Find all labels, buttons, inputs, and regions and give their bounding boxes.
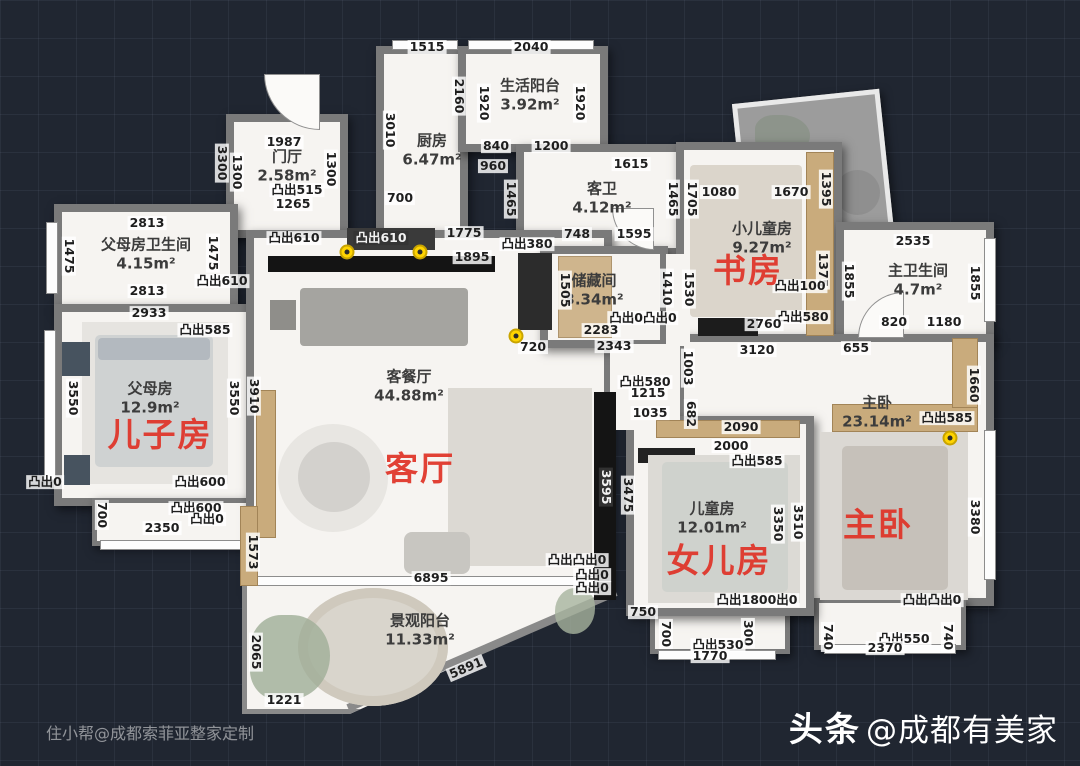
dimension-label: 1770 [691, 649, 730, 663]
dimension-label: 700 [385, 191, 415, 205]
dimension-label: 凸出0 [26, 475, 64, 489]
dimension-label: 655 [841, 341, 871, 355]
dimension-label: 1410 [660, 269, 674, 308]
dimension-label: 凸出凸出0 [901, 593, 964, 607]
room-name: 门厅 [257, 147, 316, 166]
yellow-marker [509, 329, 524, 344]
dimension-label: 2535 [894, 234, 933, 248]
dimension-label: 1215 [629, 386, 668, 400]
dimension-label: 1530 [682, 270, 696, 309]
room-name: 景观阳台 [385, 611, 455, 630]
dimension-label: 1300 [230, 153, 244, 192]
dimension-label: 1895 [453, 250, 492, 264]
dimension-label: 700 [95, 500, 109, 530]
dimension-label: 3475 [621, 476, 635, 515]
yellow-marker [340, 245, 355, 260]
red-annotation: 客厅 [385, 442, 455, 490]
dimension-label: 凸出0 [188, 512, 226, 526]
dimension-label: 1920 [573, 84, 587, 123]
dimension-label: 1705 [685, 180, 699, 219]
red-annotation: 儿子房 [108, 408, 213, 456]
room-label: 景观阳台11.33m² [385, 611, 455, 649]
room-name: 父母房卫生间 [101, 235, 191, 254]
dimension-label: 3010 [383, 111, 397, 150]
dimension-label: 2370 [866, 641, 905, 655]
dimension-label: 2933 [130, 306, 169, 320]
dimension-label: 凸出610 [194, 274, 249, 288]
dimension-label: 2040 [512, 40, 551, 54]
dimension-label: 凸出1800出0 [715, 593, 800, 607]
dimension-label: 1475 [206, 234, 220, 273]
room-label: 储藏间3.34m² [564, 271, 623, 309]
room-name: 客卫 [572, 179, 631, 198]
dimension-label: 1615 [612, 157, 651, 171]
dimension-label: 3350 [771, 505, 785, 544]
red-annotation: 书房 [713, 244, 783, 292]
room-area: 4.15m² [101, 254, 191, 273]
dimension-label: 1003 [681, 349, 695, 388]
room-name: 客餐厅 [374, 367, 444, 386]
dimension-label: 1395 [819, 170, 833, 209]
dimension-label: 1200 [532, 139, 571, 153]
room-label: 主卧23.14m² [842, 393, 912, 431]
dimension-label: 2760 [745, 317, 784, 331]
dimension-label: 2283 [582, 323, 621, 337]
dimension-label: 960 [478, 159, 508, 173]
dimension-label: 2813 [128, 284, 167, 298]
room-label: 客餐厅44.88m² [374, 367, 444, 405]
room-name: 厨房 [402, 131, 461, 150]
annotations-layer: 1515204021601920192030108401200960146514… [0, 0, 1080, 766]
dimension-label: 3550 [227, 379, 241, 418]
dimension-label: 1465 [504, 180, 518, 219]
dimension-label: 1035 [631, 406, 670, 420]
dimension-label: 2000 [712, 439, 751, 453]
room-name: 生活阳台 [500, 76, 560, 95]
dimension-label: 748 [562, 227, 592, 241]
room-area: 11.33m² [385, 630, 455, 649]
dimension-label: 凸出585 [177, 323, 232, 337]
dimension-label: 1505 [558, 271, 572, 310]
room-label: 儿童房12.01m² [677, 499, 747, 537]
room-label: 父母房卫生间4.15m² [101, 235, 191, 273]
dimension-label: 1595 [615, 227, 654, 241]
dimension-label: 1080 [700, 185, 739, 199]
dimension-label: 1300 [324, 150, 338, 189]
room-name: 儿童房 [677, 499, 747, 518]
dimension-label: 凸出585 [729, 454, 784, 468]
dimension-label: 840 [481, 139, 511, 153]
floor-plan: 1515204021601920192030108401200960146514… [0, 0, 1080, 766]
dimension-label: 682 [684, 399, 698, 429]
dimension-label: 3380 [968, 498, 982, 537]
red-annotation: 女儿房 [667, 534, 772, 582]
dimension-label: 凸出580 [775, 310, 830, 324]
dimension-label: 凸出585 [919, 411, 974, 425]
room-label: 客卫4.12m² [572, 179, 631, 217]
red-annotation: 主卧 [843, 498, 913, 546]
dimension-label: 1775 [445, 226, 484, 240]
dimension-label: 3910 [247, 377, 261, 416]
room-name: 父母房 [120, 379, 179, 398]
dimension-label: 凸出380 [499, 237, 554, 251]
room-label: 门厅2.58m² [257, 147, 316, 185]
dimension-label: 1221 [265, 693, 304, 707]
room-label: 生活阳台3.92m² [500, 76, 560, 114]
dimension-label: 740 [941, 622, 955, 652]
watermark-right: 头条 @成都有美家 [789, 702, 1058, 751]
dimension-label: 1660 [967, 366, 981, 405]
dimension-label: 凸出0 [573, 581, 611, 595]
dimension-label: 1180 [925, 315, 964, 329]
room-label: 主卫生间4.7m² [888, 261, 948, 299]
dimension-label: 2350 [143, 521, 182, 535]
dimension-label: 2160 [452, 77, 466, 116]
dimension-label: 2065 [249, 633, 263, 672]
dimension-label: 1920 [477, 84, 491, 123]
dimension-label: 1515 [408, 40, 447, 54]
dimension-label: 凸出610 [353, 231, 408, 245]
dimension-label: 3120 [738, 343, 777, 357]
dimension-label: 1855 [842, 262, 856, 301]
room-area: 3.34m² [564, 290, 623, 309]
dimension-label: 1465 [666, 180, 680, 219]
dimension-label: 700 [659, 619, 673, 649]
dimension-label: 2343 [595, 339, 634, 353]
dimension-label: 凸出515 [269, 183, 324, 197]
dimension-label: 3510 [791, 503, 805, 542]
dimension-label: 1987 [265, 135, 304, 149]
dimension-label: 1573 [246, 533, 260, 572]
dimension-label: 740 [821, 622, 835, 652]
room-label: 厨房6.47m² [402, 131, 461, 169]
room-name: 储藏间 [564, 271, 623, 290]
room-area: 3.92m² [500, 95, 560, 114]
dimension-label: 2813 [128, 216, 167, 230]
yellow-marker [413, 245, 428, 260]
dimension-label: 凸出0凸出0 [607, 311, 678, 325]
room-name: 小儿童房 [732, 219, 792, 238]
room-area: 44.88m² [374, 386, 444, 405]
dimension-label: 1670 [772, 185, 811, 199]
dimension-label: 3300 [215, 144, 229, 183]
dimension-label: 1475 [62, 237, 76, 276]
room-area: 23.14m² [842, 412, 912, 431]
dimension-label: 2090 [722, 420, 761, 434]
dimension-label: 1855 [968, 264, 982, 303]
dimension-label: 720 [518, 340, 548, 354]
dimension-label: 凸出凸出0 [546, 553, 609, 567]
dimension-label: 5891 [445, 654, 486, 682]
dimension-label: 1265 [274, 197, 313, 211]
yellow-marker [943, 431, 958, 446]
room-area: 4.7m² [888, 280, 948, 299]
watermark-brand: 头条 [789, 710, 861, 750]
dimension-label: 820 [879, 315, 909, 329]
dimension-label: 3550 [66, 379, 80, 418]
room-name: 主卧 [842, 393, 912, 412]
watermark-left: 住小帮@成都索菲亚整家定制 [46, 720, 254, 744]
dimension-label: 凸出610 [266, 231, 321, 245]
watermark-handle: @成都有美家 [866, 713, 1058, 749]
dimension-label: 6895 [412, 571, 451, 585]
room-area: 6.47m² [402, 150, 461, 169]
dimension-label: 750 [628, 605, 658, 619]
room-name: 主卫生间 [888, 261, 948, 280]
dimension-label: 凸出600 [172, 475, 227, 489]
room-area: 4.12m² [572, 198, 631, 217]
dimension-label: 3595 [599, 468, 613, 507]
